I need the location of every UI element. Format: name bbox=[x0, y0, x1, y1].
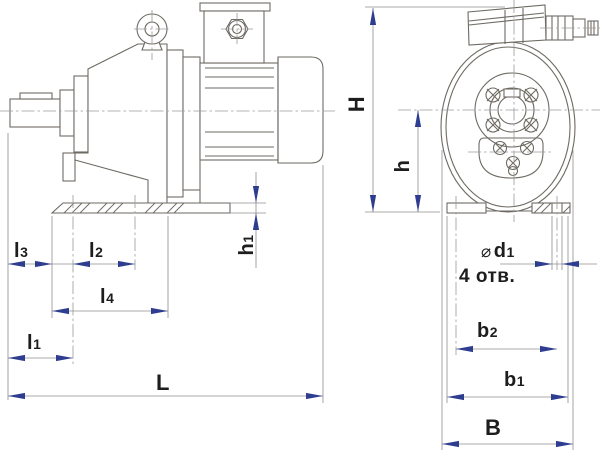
output-shaft bbox=[10, 99, 60, 127]
foot-left bbox=[447, 203, 486, 213]
dimension-label-H: H bbox=[346, 96, 368, 112]
label-base: h bbox=[392, 160, 414, 173]
bearing-cover-lower bbox=[63, 153, 75, 181]
keyway bbox=[504, 89, 520, 97]
label-base: H bbox=[344, 96, 369, 112]
label-base: L bbox=[156, 370, 170, 395]
base-plate bbox=[52, 203, 230, 213]
motor-body bbox=[200, 63, 278, 160]
label-sub: 1 bbox=[33, 336, 41, 352]
label-base: b bbox=[477, 320, 490, 342]
dimension-label-l3: l3 bbox=[14, 241, 28, 261]
flange-plate-outer bbox=[167, 50, 183, 197]
shaft-collar bbox=[60, 90, 74, 136]
flange-plate-inner bbox=[183, 57, 200, 190]
dimension-label-h1: h1 bbox=[237, 234, 257, 255]
shaft-key bbox=[20, 93, 52, 99]
dimension-label-h: h bbox=[393, 160, 413, 173]
bearing-cover-upper bbox=[74, 76, 88, 152]
label-base: B bbox=[485, 415, 501, 440]
dimension-label-l1: l1 bbox=[27, 333, 41, 353]
technical-drawing: l3 l2 l4 l1 L h1 H h ⌀d1 4 отв. b2 b1 B bbox=[0, 0, 600, 455]
note-text: 4 отв. bbox=[459, 266, 515, 287]
dimension-label-b2: b2 bbox=[477, 321, 498, 341]
dimension-label-l2: l2 bbox=[89, 241, 103, 261]
terminal-box-front bbox=[468, 5, 546, 45]
label-sub: 2 bbox=[95, 244, 103, 260]
label-sub: 2 bbox=[490, 324, 498, 340]
dimension-label-l4: l4 bbox=[100, 287, 114, 307]
fan-cowl bbox=[278, 57, 323, 163]
label-sub: 4 bbox=[106, 290, 114, 306]
diameter-symbol: ⌀ bbox=[481, 242, 494, 261]
dimension-label-b1: b1 bbox=[504, 370, 525, 390]
label-sub: 1 bbox=[506, 244, 514, 260]
label-base: h bbox=[236, 243, 258, 256]
front-body-outer bbox=[441, 42, 575, 212]
dimension-label-L: L bbox=[156, 372, 170, 394]
label-base: b bbox=[504, 369, 517, 391]
dimension-label-d1: ⌀d1 bbox=[481, 241, 515, 261]
label-sub: 1 bbox=[240, 234, 256, 242]
holes-count-note: 4 отв. bbox=[459, 267, 515, 286]
label-sub: 3 bbox=[20, 244, 28, 260]
label-base: d bbox=[494, 240, 507, 262]
terminal-box-side bbox=[200, 3, 270, 63]
dimension-label-B: B bbox=[485, 417, 501, 439]
label-sub: 1 bbox=[517, 373, 525, 389]
